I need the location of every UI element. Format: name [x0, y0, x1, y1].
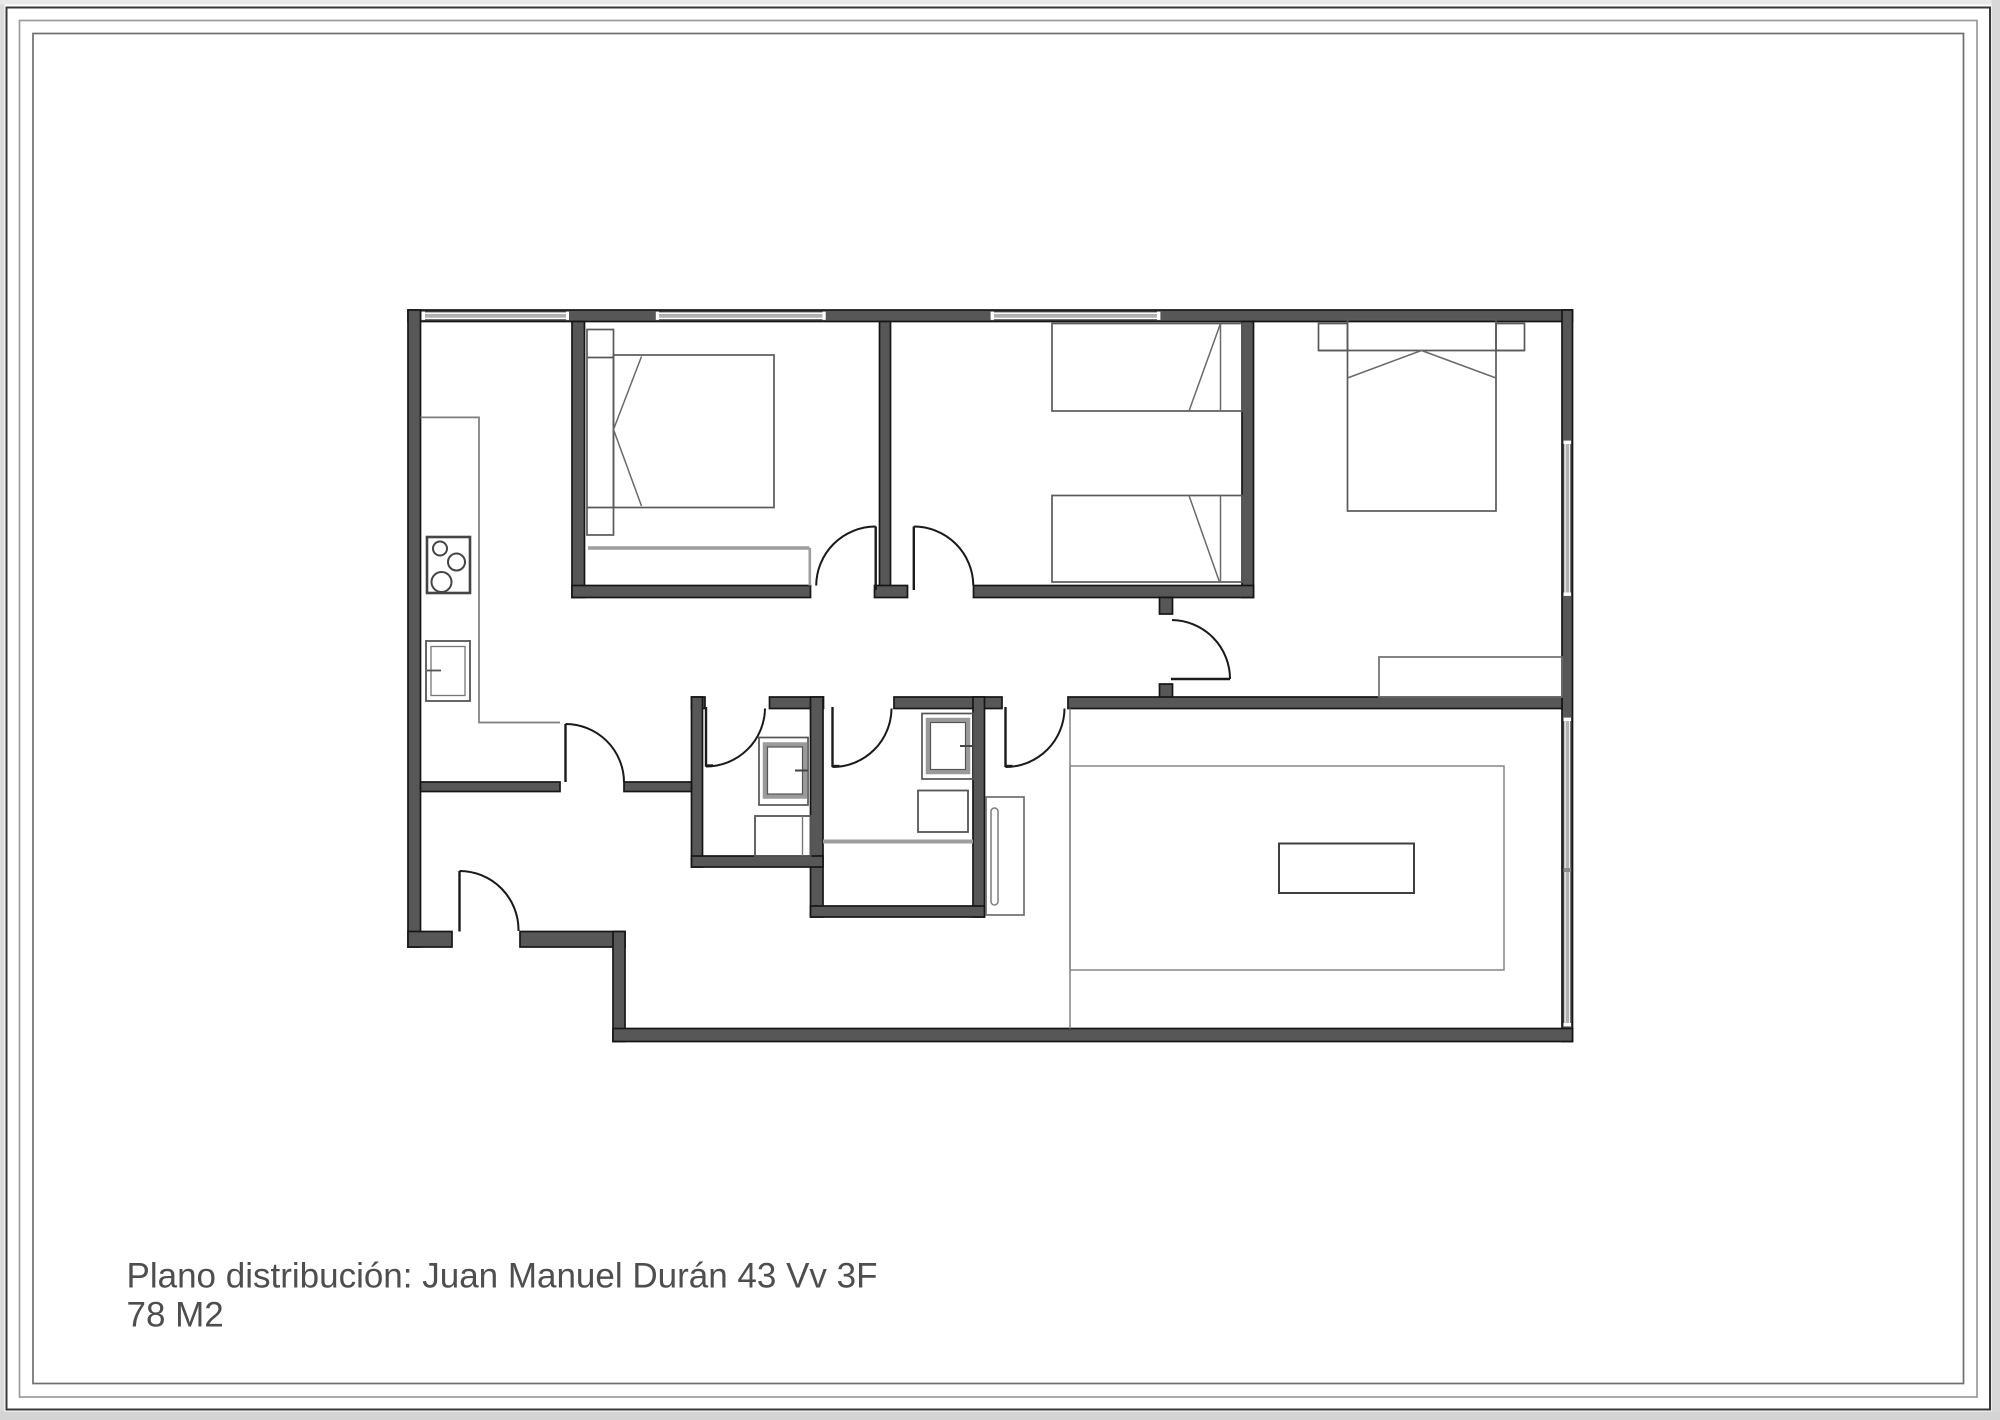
svg-text:Plano distribución: Juan Manue: Plano distribución: Juan Manuel Durán 43…	[127, 1257, 878, 1296]
svg-text:78 M2: 78 M2	[127, 1296, 224, 1335]
